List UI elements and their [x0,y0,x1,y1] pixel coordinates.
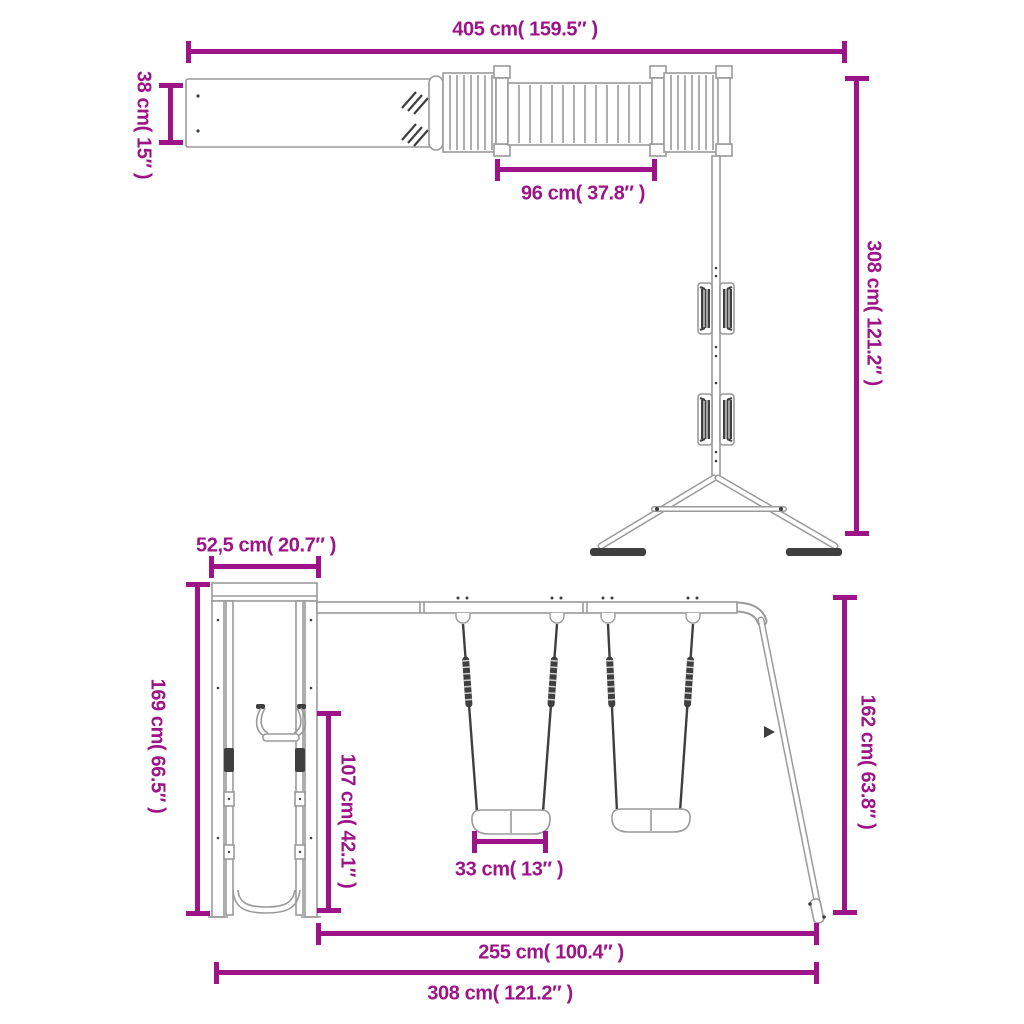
dim-line-top-total-height [854,76,859,536]
dim-line-beam-height [842,595,847,915]
dim-label-frame-height: 169 cm( 66.5″ ) [146,679,169,814]
dim-label-seat-width: 33 cm( 13″ ) [455,859,563,882]
dim-label-beam-height: 162 cm( 63.8″ ) [856,695,879,830]
dim-label-swing-span: 255 cm( 100.4″ ) [478,942,624,965]
dim-line-frame-depth [209,564,321,569]
dim-line-seat-width [472,839,548,844]
dim-line-slide-height [326,711,331,913]
dim-line-slide-width [168,83,173,145]
dim-line-frame-height [195,582,200,916]
dim-label-frame-depth: 52,5 cm( 20.7″ ) [196,535,336,558]
dim-line-top-total-width [186,49,847,54]
top-view-drawing [186,66,842,556]
dim-label-top-total-height: 308 cm( 121.2″ ) [862,240,885,386]
dim-label-slide-width: 38 cm( 15″ ) [132,71,155,179]
dim-line-swing-span [316,931,819,936]
dim-label-bottom-total-width: 308 cm( 121.2″ ) [427,983,573,1006]
dim-label-bridge-length: 96 cm( 37.8″ ) [521,183,645,206]
dim-label-top-total-width: 405 cm( 159.5″ ) [452,19,598,42]
dim-line-bottom-total-width [214,970,819,975]
dim-label-slide-height: 107 cm( 42.1″ ) [336,754,359,889]
product-dimension-diagram: 405 cm( 159.5″ ) 38 cm( 15″ ) 96 cm( 37.… [0,0,1024,1024]
dim-line-bridge-length [495,167,657,172]
